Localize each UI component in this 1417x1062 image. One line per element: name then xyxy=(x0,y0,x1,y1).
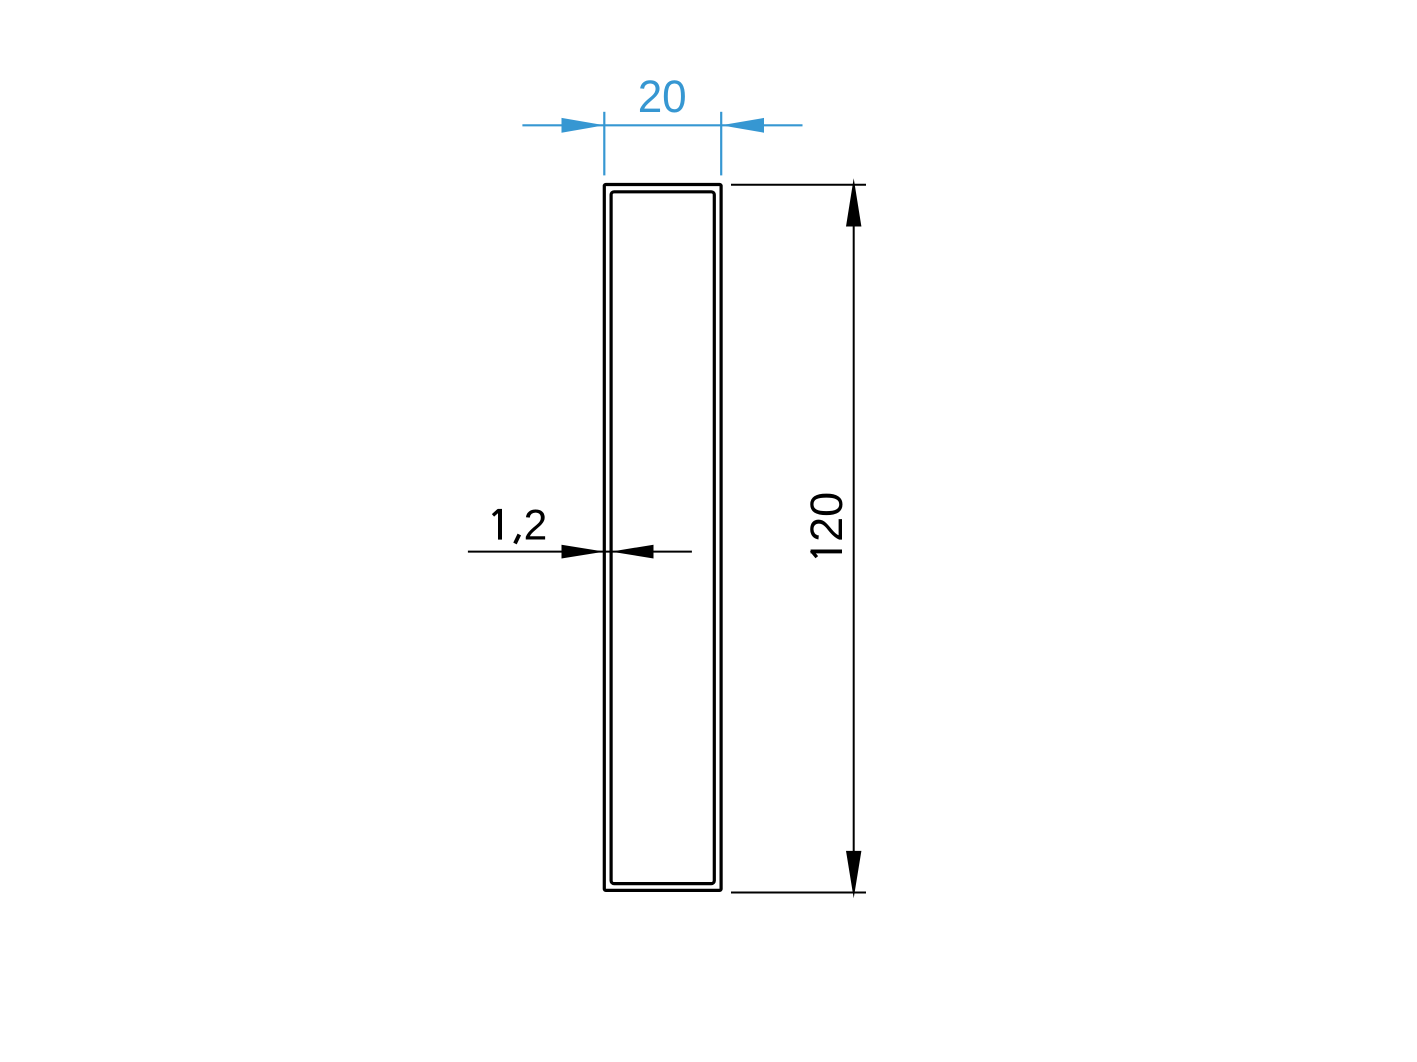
svg-text:2: 2 xyxy=(524,503,548,550)
svg-text:20: 20 xyxy=(638,71,687,122)
svg-text:20: 20 xyxy=(801,492,852,542)
